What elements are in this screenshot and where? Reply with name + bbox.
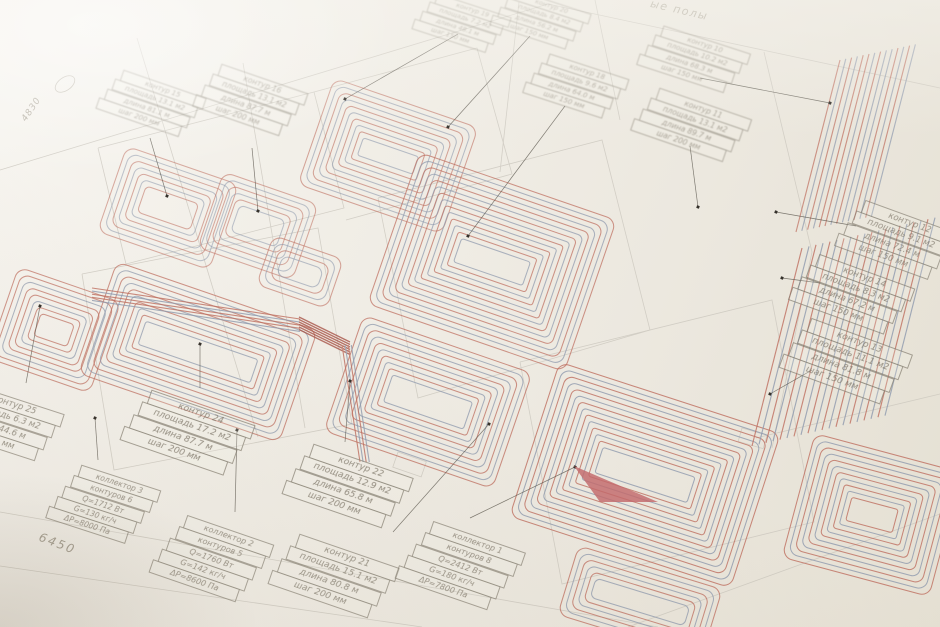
contour-table-k16: контур 16площадь 13.1 м2длина 87.7 мшаг …: [192, 60, 295, 136]
contour-table-k10: контур 10площадь 10.2 м2длина 68.3 мшаг …: [636, 22, 737, 93]
contour-table-k20: контур 20площадь 8.4 м2длина 56.2 мшаг 1…: [489, 0, 578, 50]
annotation-tables-layer: контур 15площадь 13.1 м2длина 81.1 мшаг …: [0, 0, 940, 627]
collector-table-c2: коллектор 2контуров 5Q=1760 ВтG=142 кг/ч…: [149, 510, 257, 602]
collector-table-c1: коллектор 1контуров 8Q=2412 ВтG=180 кг/ч…: [395, 516, 509, 610]
contour-table-k22: контур 22площадь 12.9 м2длина 65.8 мшаг …: [282, 440, 401, 528]
contour-table-k25: контур 25площадь 6.3 м2длина 44.6 мшаг 1…: [0, 380, 51, 461]
contour-table-k21: контур 21площадь 15.1 м2длина 80.8 мшаг …: [268, 530, 387, 618]
collector-table-c3: коллектор 3контуров 6Q=1712 ВтG=130 кг/ч…: [45, 460, 144, 544]
contour-table-k19: контур 19площадь 7.2 м2длина 48.1 мшаг 1…: [411, 0, 498, 53]
contour-table-k15: контур 15площадь 13.1 м2длина 81.1 мшаг …: [95, 66, 193, 137]
contour-table-k18: контур 18площадь 9.6 м2длина 64.0 мшаг 1…: [522, 50, 616, 119]
blueprint-photo: контур 15площадь 13.1 м2длина 81.1 мшаг …: [0, 0, 940, 627]
contour-table-k24: контур 24площадь 17.2 м2длина 87.7 мшаг …: [120, 386, 243, 476]
contour-table-k11: контур 11площадь 13.1 м2длина 89.7 мшаг …: [630, 84, 739, 162]
